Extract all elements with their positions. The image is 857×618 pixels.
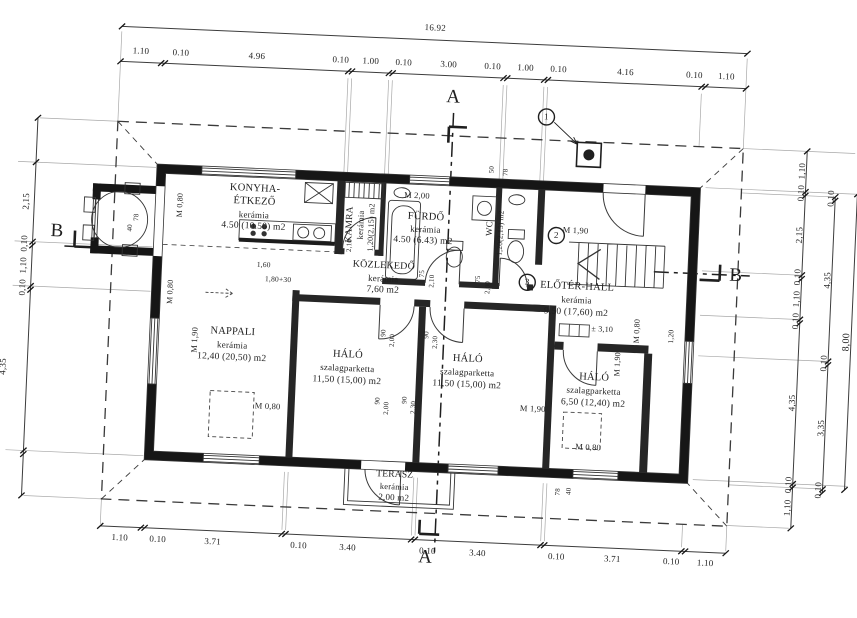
dim-right-mid-4: 3,35 [816,420,826,437]
room-bed3-floor: szalagparketta [566,386,621,397]
dim-left-3: 1,10 [19,257,29,274]
dim-door3-h: 2,00 [383,402,391,415]
dim-top-wall-1: 50 [488,166,495,174]
dim-top-11: 4.16 [617,68,634,78]
dim-kitchen-opening-1: 1,60 [257,261,271,269]
detail-marker-3: 3 [525,278,530,287]
dim-right-7: 4,35 [787,394,797,411]
room-bath-area: 4.50 (6.43) m2 [393,236,453,248]
dim-wc-door-w: 75 [475,275,482,283]
dim-top-6: 0.10 [395,58,412,68]
dim-top-5: 1.00 [362,56,379,66]
dim-right-mid-3: 0,10 [819,355,829,372]
living-parapet-south: M 0,80 [255,401,281,411]
dim-left-4: 0,10 [18,279,28,296]
dim-bottom-8: 0.10 [548,552,565,562]
floor-plan-sheet: 16.921.100.104.960.101.000.103.000.101.0… [0,0,857,618]
room-pantry-floor: kerámia [356,210,366,239]
dim-right-mid-1: 0,10 [826,190,836,207]
dim-door1-h: 2,00 [389,334,397,347]
dim-bottom-4: 0.10 [290,541,307,551]
room-terrace-name: TERASZ [376,470,413,481]
dim-top-13: 1.10 [718,72,735,82]
room-terrace-area: 2,00 m2 [378,492,409,502]
dim-east-strip: 1,20 [667,329,675,343]
room-living-name: NAPPALI [210,326,255,338]
room-bath-floor: kerámia [410,225,441,235]
room-living-area: 12,40 (20,50) m2 [197,352,267,365]
dim-bottom-5: 3.40 [339,543,356,553]
section-a-bottom: A [418,547,433,567]
room-bed1-area: 11,50 (15,00) m2 [312,375,381,387]
room-bed3-name: HÁLÓ [579,372,609,384]
room-living-floor: kerámia [217,340,248,350]
dim-top-10: 0.10 [550,65,567,75]
living-west-parapet: M 0,80 [166,279,175,304]
dim-top-12: 0.10 [686,71,703,81]
room-kitchen-floor: kerámia [239,210,270,220]
dim-b-wall-1: 78 [133,213,140,221]
room-bed2-floor: szalagparketta [440,367,495,378]
dim-bottom-11: 1.10 [697,558,714,568]
dim-bath-door-h: 2,10 [428,274,436,287]
hall-parapet-east: M 0,80 [633,319,642,344]
section-b-right: B [729,266,743,286]
dim-top-2: 0.10 [172,48,189,58]
dim-door4-w: 90 [401,396,408,404]
dim-bottom-1: 1.10 [111,533,128,543]
bath-parapet: M 2,00 [404,191,430,201]
room-bed2-name: HÁLÓ [453,354,483,366]
bed3-parapet-south: M 0,80 [575,442,601,452]
dim-top-3: 4.96 [248,51,265,61]
detail-marker-1: 1 [544,112,549,121]
dim-right-total: 8,00 [842,333,853,352]
dim-top-7: 3.00 [440,60,457,70]
dim-top-total: 16.92 [424,23,446,33]
dim-top-wall-2: 78 [502,168,509,176]
dim-right-3: 2,15 [795,227,805,244]
dim-right-9: 1,10 [783,499,793,516]
hall-level: ± 3,10 [591,325,613,334]
room-bed1-floor: szalagparketta [320,363,375,374]
dim-door4-h: 2,30 [410,401,418,414]
room-wc-area: 1,20(2,15) m2 [496,210,505,256]
dim-top-9: 1.00 [517,63,534,73]
dim-door2-h: 2,30 [432,336,440,349]
bed2-parapet: M 1,90 [520,404,546,414]
room-corridor-area: 7,60 m2 [366,286,399,297]
dim-right-mid-2: 4,35 [823,272,833,289]
dim-right-4: 0,10 [793,269,803,286]
room-hall-area: 9,50 (17,60) m2 [544,307,609,319]
scan-rotation-wrapper: 16.921.100.104.960.101.000.103.000.101.0… [0,0,857,618]
dim-right-8: 0,10 [784,476,794,493]
section-b-left: B [50,221,64,241]
dim-right-2: 0,10 [797,185,807,202]
dim-wc-door-h: 2,00 [484,281,492,294]
dim-left-2: 0,10 [20,235,30,252]
dim-right-1: 1,10 [798,163,808,180]
room-wc-name: WC [485,221,495,236]
hall-parapet: M 1,90 [563,226,589,236]
dim-bottom-10: 0.10 [663,557,680,567]
bed3-parapet-north: M 1,90 [613,352,622,377]
dim-bottom-3: 3.71 [204,537,221,547]
dim-bottom-9: 3.71 [604,554,621,564]
room-bed2-area: 11,50 (15,00) m2 [432,379,501,391]
annotation-layer: 16.921.100.104.960.101.000.103.000.101.0… [0,0,857,618]
dim-bath-door-w: 75 [419,270,426,278]
dim-se-wall-1: 78 [554,488,561,496]
dim-bottom-7: 3.40 [469,549,486,559]
room-kitchen-name-2: ÉTKEZŐ [233,196,275,208]
room-bed1-name: HÁLÓ [333,350,363,362]
room-hall-name: ELŐTÉR-HALL [540,281,614,295]
detail-marker-2: 2 [554,231,559,240]
kitchen-bay-parapet: M 0,80 [176,193,185,218]
dim-left-1: 2,15 [21,193,31,210]
dim-bottom-2: 0.10 [149,535,166,545]
dim-b-wall-2: 40 [127,224,134,232]
room-hall-floor: kerámia [561,295,592,305]
room-bath-name: FÜRDŐ [407,212,444,224]
dim-right-6: 0,10 [791,313,801,330]
dim-door2-w: 90 [423,331,430,339]
dim-pantry-door: 2,10 [346,239,354,252]
room-terrace-floor: kerámia [380,482,409,492]
dim-right-5: 1,10 [792,291,802,308]
living-parapet-west: M 1,90 [190,327,200,353]
room-pantry-area: 1,20(2,15) m2 [366,203,376,251]
dim-left-5: 4,35 [0,358,8,375]
room-corridor-floor: kerámia [368,274,399,284]
dim-right-mid-5: 0,10 [814,482,824,499]
dim-se-wall-2: 40 [566,487,573,495]
dim-door3-w: 90 [374,397,381,405]
room-corridor-name: KÖZLEKEDŐ [352,260,415,273]
room-kitchen-area: 4.50 (10.50) m2 [221,221,286,233]
dim-top-8: 0.10 [484,62,501,72]
dim-top-1: 1.10 [133,46,150,56]
room-kitchen-name-1: KONYHA- [230,183,281,196]
dim-door1-w: 90 [380,329,387,337]
dim-kitchen-opening-2: 1,80+30 [265,275,292,284]
section-a-top: A [446,87,461,107]
room-bed3-area: 6,50 (12,40) m2 [561,398,626,410]
dim-top-4: 0.10 [332,55,349,65]
